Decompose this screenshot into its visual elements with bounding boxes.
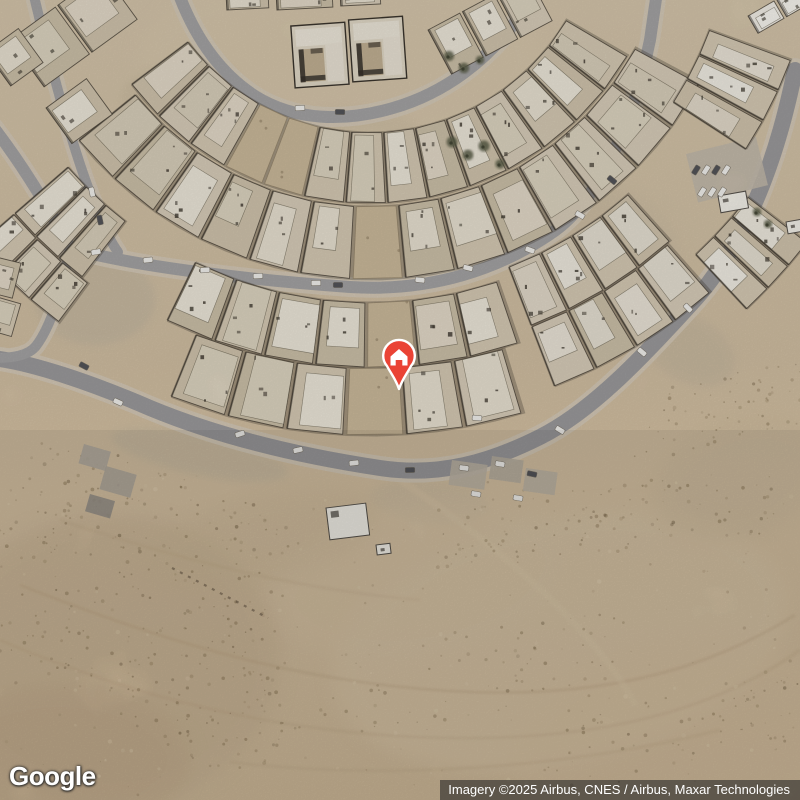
attribution-text: Imagery ©2025 Airbus, CNES / Airbus, Max… [448, 782, 790, 797]
map-viewport[interactable]: Google Imagery ©2025 Airbus, CNES / Airb… [0, 0, 800, 800]
mottle-overlay [0, 430, 800, 800]
attribution-bar: Imagery ©2025 Airbus, CNES / Airbus, Max… [440, 780, 800, 800]
google-logo[interactable]: Google [9, 761, 96, 792]
satellite-imagery [0, 0, 800, 800]
